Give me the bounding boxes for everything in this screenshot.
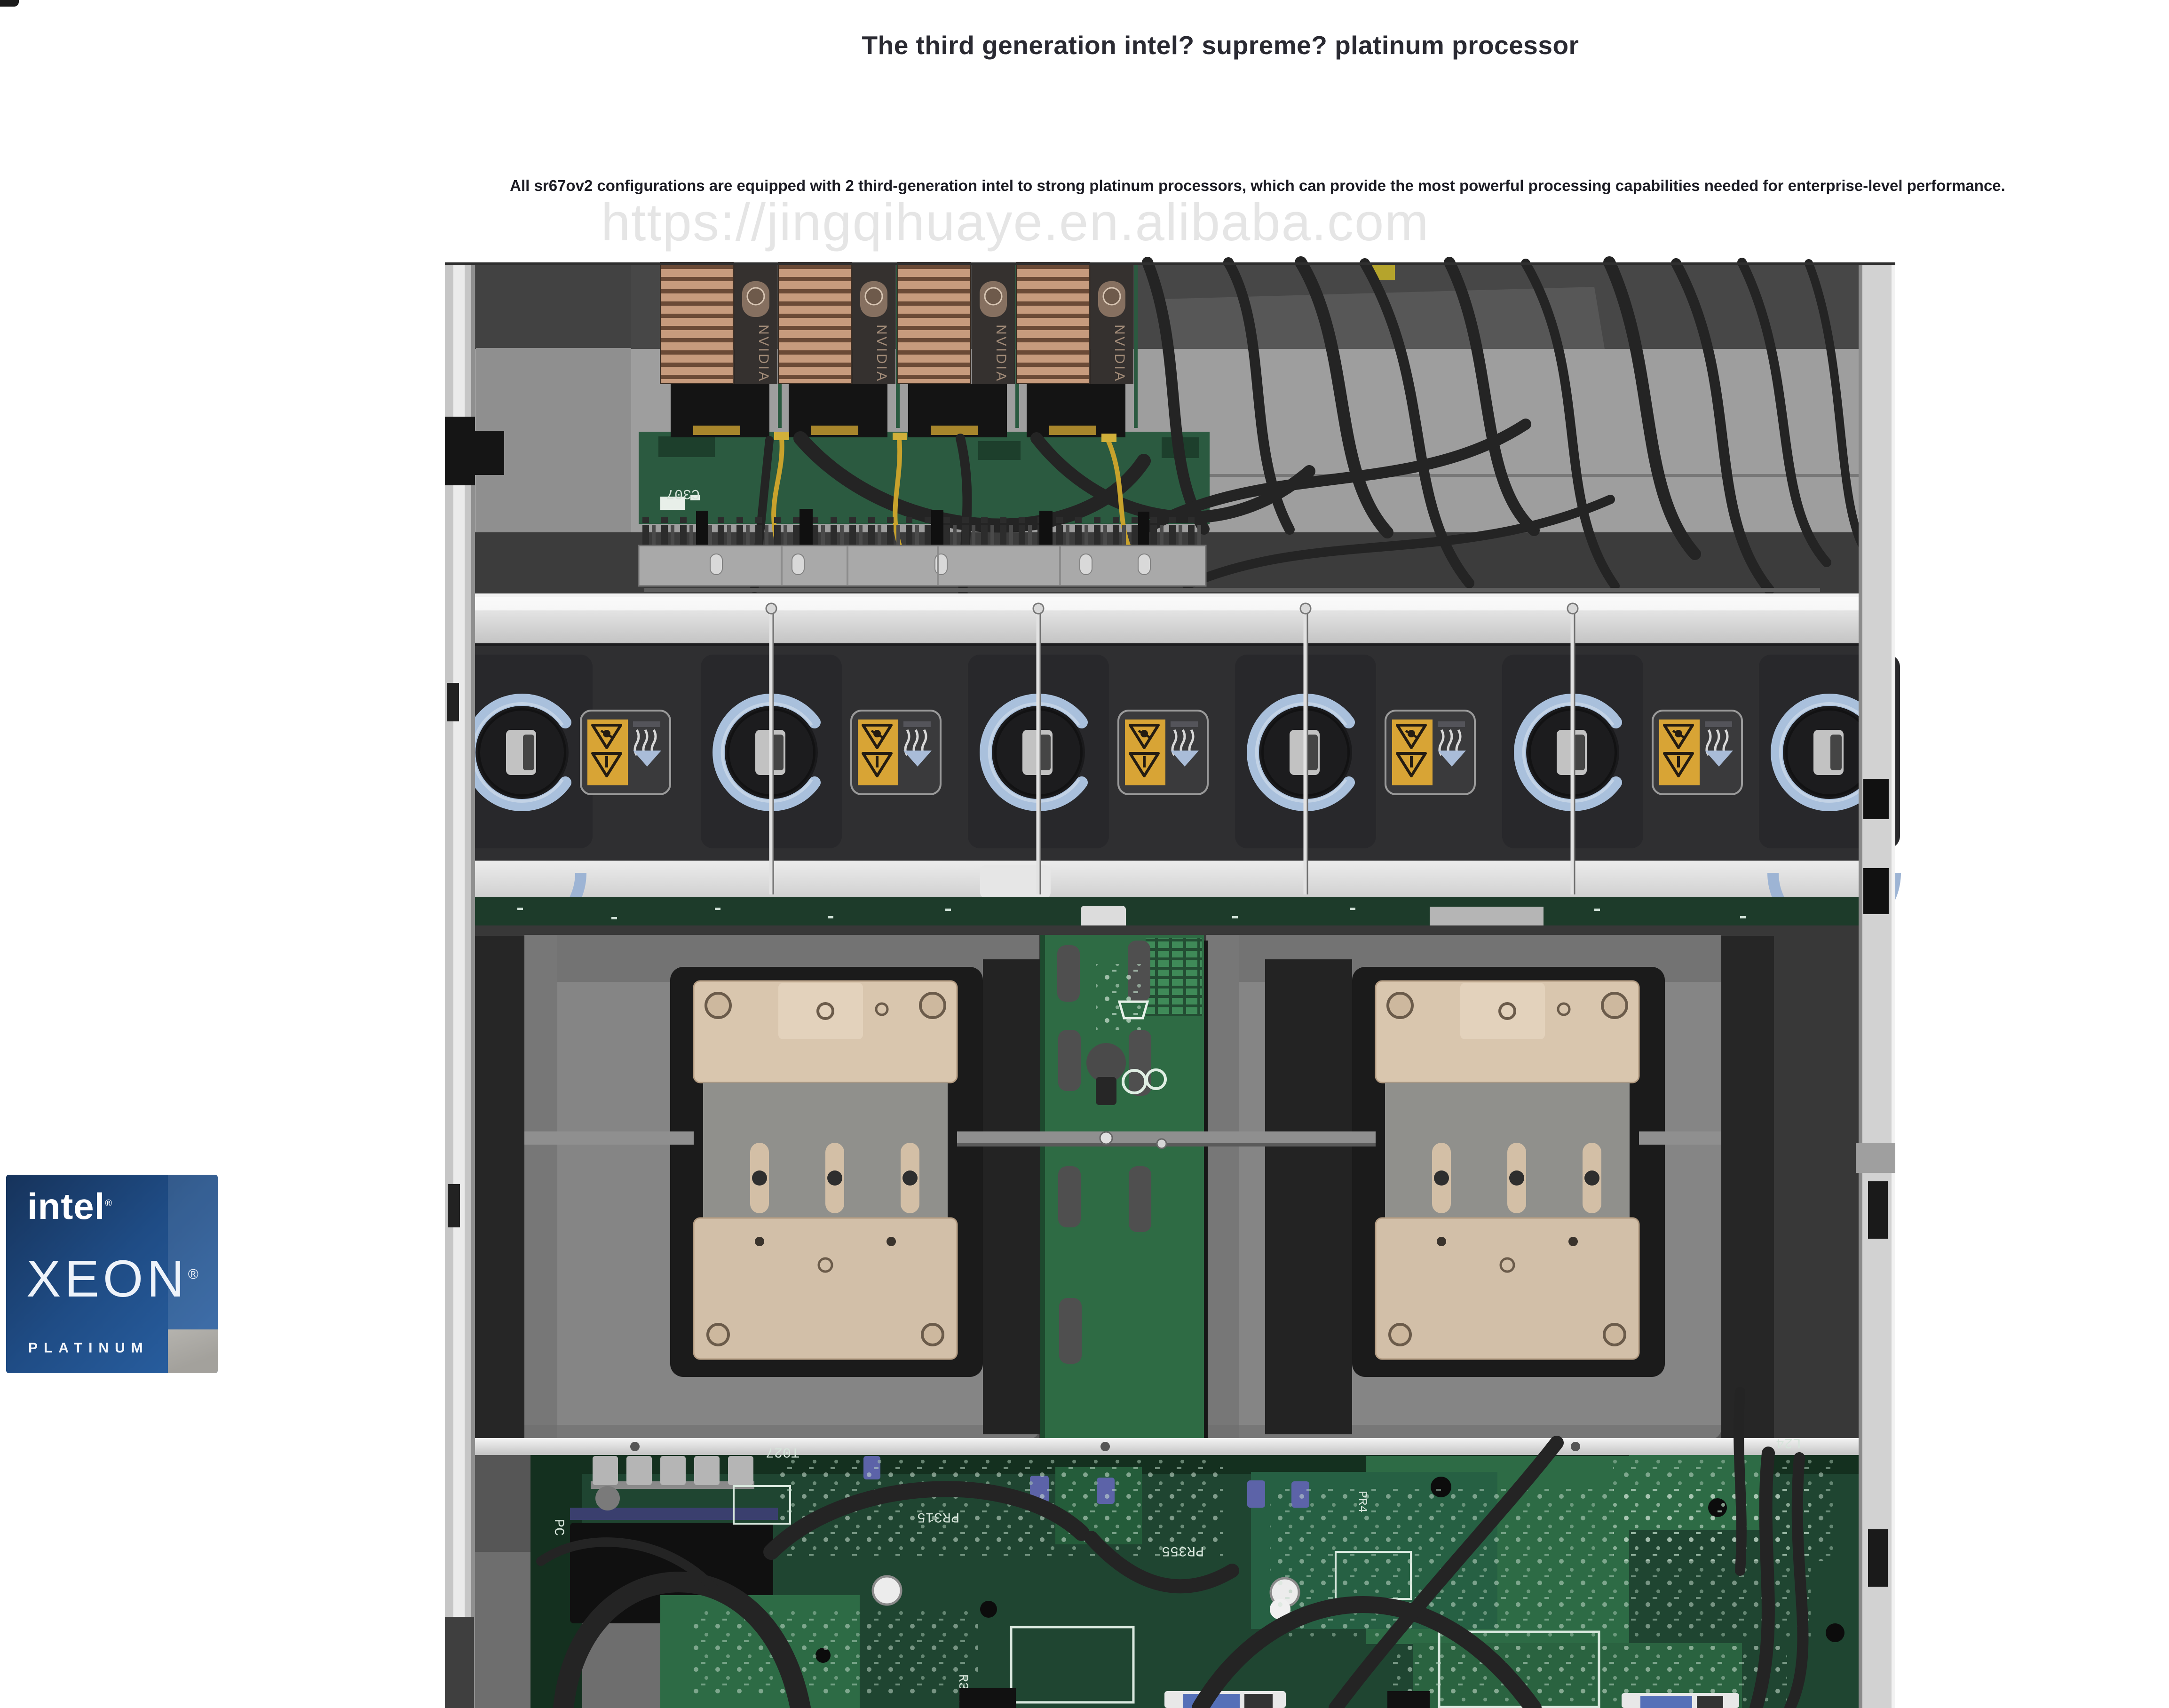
label-top-bar	[633, 721, 660, 727]
rod-ball-tip	[1567, 603, 1578, 614]
label-top-bar	[903, 721, 931, 727]
silkscreen-pr315: PR315	[917, 1509, 959, 1525]
fan-latch-notch	[772, 735, 784, 770]
silkscreen-pr4: PR4	[1355, 1491, 1369, 1513]
fan-latch-notch	[523, 735, 534, 770]
gpu-copper-fins	[898, 262, 971, 384]
nvidia-label: NVIDIA	[1112, 324, 1127, 383]
label-top-bar	[1171, 721, 1198, 727]
silver-strip-lower	[474, 861, 1859, 899]
silkscreen-pr355: PR355	[1162, 1542, 1204, 1558]
bottom-motherboard: PC	[474, 1434, 1859, 1708]
heatsink-screw	[1388, 993, 1412, 1018]
board-clip	[593, 1456, 618, 1485]
baffle-left	[474, 936, 525, 1449]
baffle-inner-right	[1265, 959, 1352, 1434]
heatsink-screw	[706, 993, 730, 1018]
right-wall	[1856, 262, 1895, 1708]
fan-warning-label	[1118, 711, 1208, 794]
page: The third generation intel? supreme? pla…	[0, 0, 2169, 1708]
nvidia-gpu-heatsink: NVIDIA	[778, 262, 900, 437]
rod-ball-tip	[1300, 603, 1311, 614]
nvidia-eye-icon	[1103, 288, 1120, 305]
riser-pad-grid	[1146, 938, 1202, 1016]
nvidia-eye-icon	[985, 288, 1002, 305]
cpu-heatsink	[1376, 981, 1639, 1359]
nvidia-gpu-heatsink: NVIDIA	[660, 262, 782, 437]
clamp-screw	[1100, 1132, 1112, 1144]
rod-ball-tip	[1033, 603, 1044, 614]
gpu-array: NVIDIA NVIDIA NVIDIA	[660, 262, 1138, 437]
nvidia-label: NVIDIA	[756, 324, 771, 383]
silkscreen-t027: T027	[766, 1444, 800, 1460]
comb-plate	[639, 546, 1206, 586]
gpu-copper-fins	[778, 262, 851, 384]
nvidia-eye-icon	[865, 288, 882, 305]
fan-warning-label	[1385, 711, 1475, 794]
fan-latch-notch	[1830, 735, 1842, 770]
label-top-bar	[1705, 721, 1732, 727]
baffle-inner-left	[983, 959, 1040, 1434]
gpu-pcb-sliver	[1134, 263, 1138, 428]
gpu-gold-pins	[1049, 426, 1096, 435]
heatsink-bottom-plate	[694, 1218, 957, 1359]
edge-connector	[1622, 1693, 1739, 1708]
fan-warning-label	[1653, 711, 1742, 794]
blue-header	[570, 1508, 778, 1520]
gpu-gold-pins	[811, 426, 858, 435]
fan-warning-label	[581, 711, 670, 794]
edge-connector	[1164, 1691, 1286, 1708]
caution-glyph	[876, 756, 879, 767]
caution-glyph	[1143, 756, 1146, 767]
rod-ball-tip	[766, 603, 776, 614]
standoff-post	[873, 1576, 901, 1605]
nvidia-gpu-heatsink: NVIDIA	[1016, 262, 1138, 437]
gpu-copper-fins	[1016, 262, 1089, 384]
bottom-rail	[474, 1438, 1859, 1455]
nvidia-gpu-heatsink: NVIDIA	[898, 262, 1019, 437]
cpu-heatsink	[694, 981, 957, 1359]
caution-glyph	[1677, 756, 1680, 767]
nvidia-eye-icon	[747, 288, 764, 305]
gpu-gold-pins	[693, 426, 740, 435]
silkscreen-c307: C307	[666, 485, 700, 501]
fan-latch-notch	[1306, 735, 1318, 770]
caution-glyph	[1410, 756, 1413, 767]
nvidia-label: NVIDIA	[874, 324, 889, 383]
nvidia-label: NVIDIA	[993, 324, 1009, 383]
center-riser-pcb	[1040, 935, 1204, 1453]
heatsink-bottom-plate	[1376, 1218, 1639, 1359]
fan-warning-label	[851, 711, 941, 794]
server-internals-photo: NVIDIA	[0, 0, 2169, 1708]
label-top-bar	[1438, 721, 1465, 727]
riser-standoff	[1086, 1043, 1126, 1083]
silkscreen-l24: L24	[1776, 1434, 1801, 1450]
fan-latch-notch	[1574, 735, 1585, 770]
right-wall-latch	[1863, 779, 1889, 819]
gpu-copper-fins	[660, 262, 733, 384]
silkscreen-pc: PC	[550, 1519, 566, 1536]
fan-latch-notch	[1039, 735, 1051, 770]
photo-top-edge	[445, 262, 1895, 265]
gpu-gold-pins	[931, 426, 978, 435]
baffle-right	[1721, 936, 1774, 1449]
caution-glyph	[605, 756, 608, 767]
